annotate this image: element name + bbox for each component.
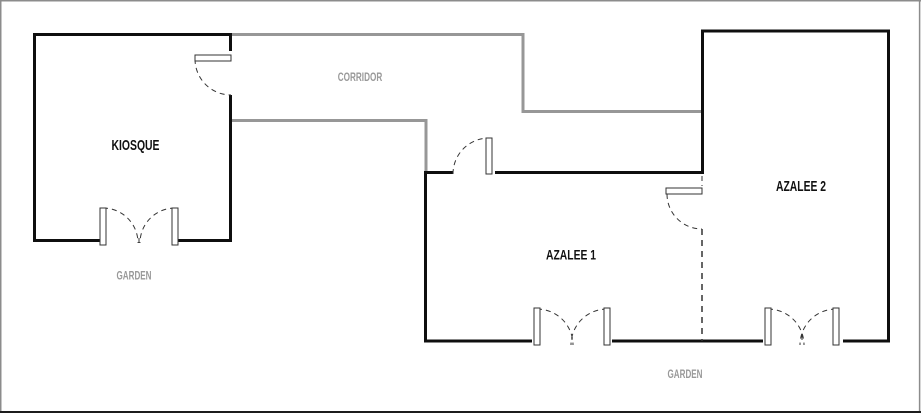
svg-text:GARDEN: GARDEN [117,269,152,283]
svg-text:AZALEE 2: AZALEE 2 [776,178,826,195]
svg-text:CORRIDOR: CORRIDOR [338,72,383,84]
svg-text:KIOSQUE: KIOSQUE [112,137,160,154]
svg-text:GARDEN: GARDEN [668,367,703,381]
svg-text:AZALEE 1: AZALEE 1 [546,247,596,263]
